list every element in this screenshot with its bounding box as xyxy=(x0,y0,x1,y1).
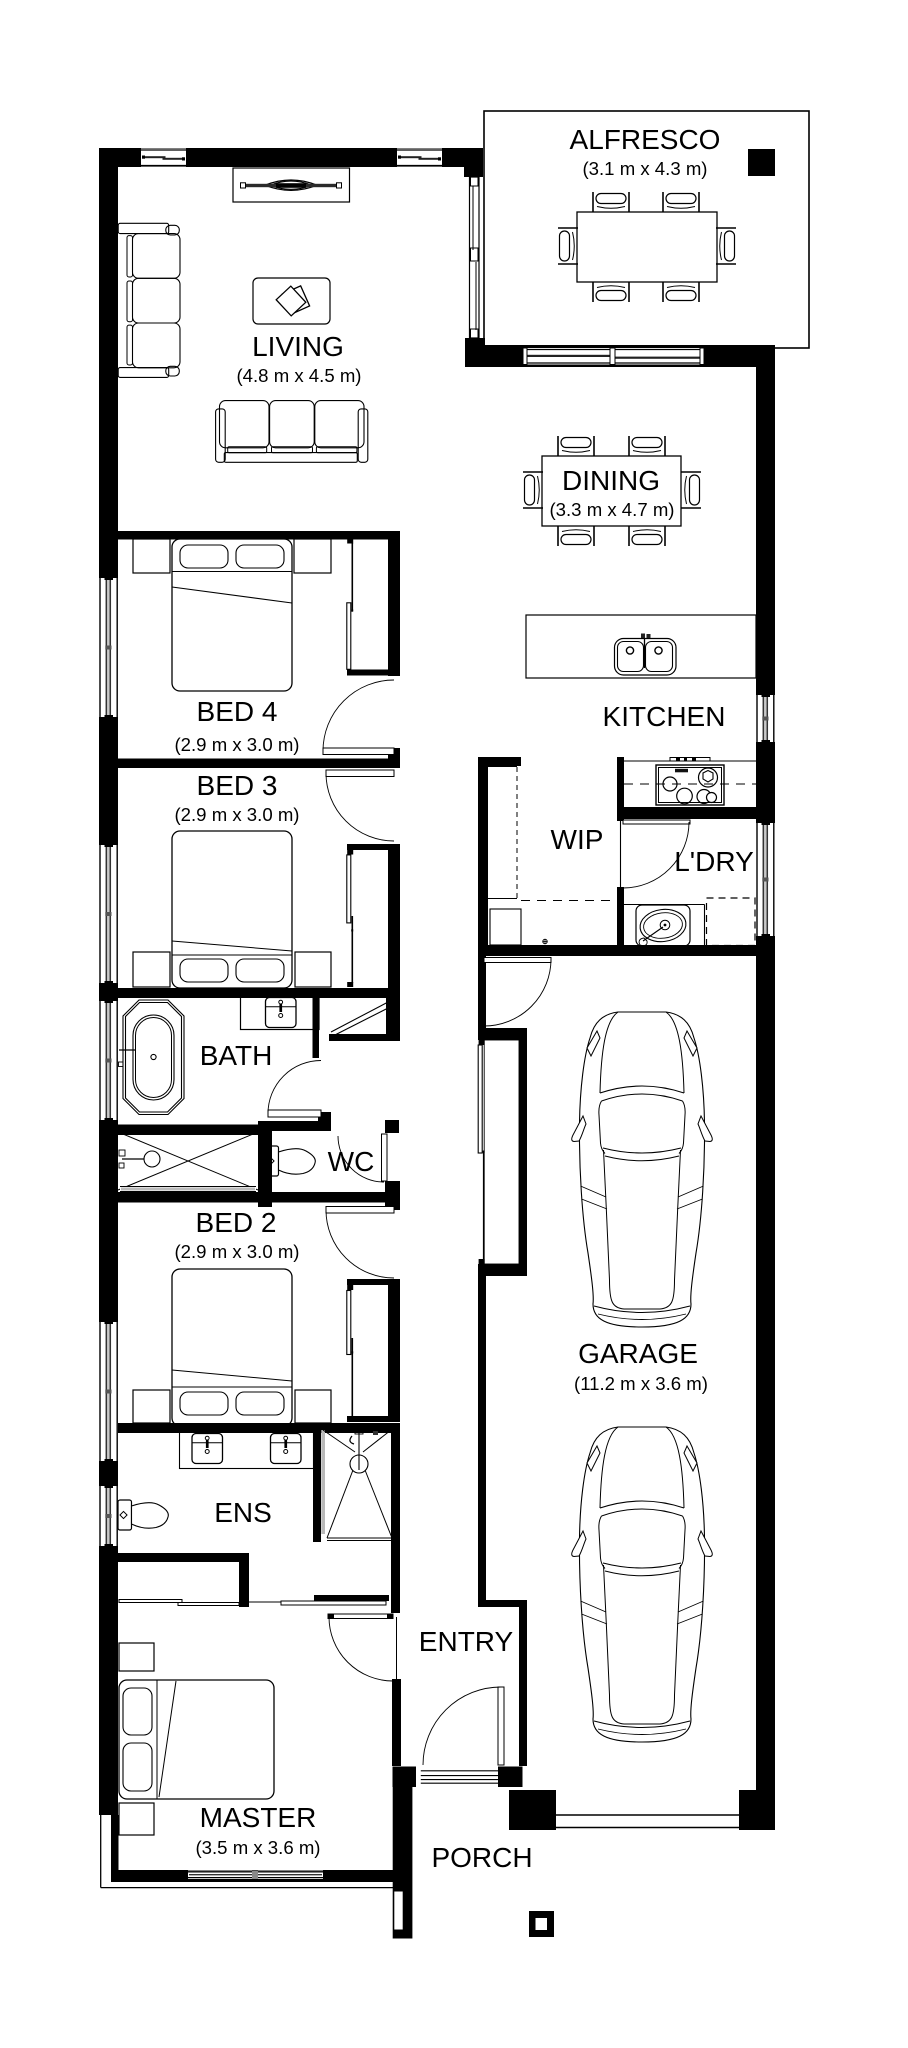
svg-text:(3.1 m x 4.3 m): (3.1 m x 4.3 m) xyxy=(582,158,707,179)
svg-text:(3.5 m x 3.6 m): (3.5 m x 3.6 m) xyxy=(195,1837,320,1858)
svg-text:BED 4: BED 4 xyxy=(197,696,278,727)
svg-text:BED 3: BED 3 xyxy=(197,770,278,801)
svg-text:MASTER: MASTER xyxy=(200,1802,317,1833)
svg-text:(3.3 m x 4.7 m): (3.3 m x 4.7 m) xyxy=(549,499,674,520)
svg-text:ENTRY: ENTRY xyxy=(419,1626,514,1657)
svg-text:WC: WC xyxy=(328,1146,375,1177)
svg-text:BATH: BATH xyxy=(200,1040,273,1071)
svg-text:L'DRY: L'DRY xyxy=(674,846,754,877)
svg-text:ALFRESCO: ALFRESCO xyxy=(570,124,721,155)
svg-text:(4.8 m x 4.5 m): (4.8 m x 4.5 m) xyxy=(236,365,361,386)
svg-text:(2.9 m x 3.0 m): (2.9 m x 3.0 m) xyxy=(174,804,299,825)
svg-text:KITCHEN: KITCHEN xyxy=(603,701,726,732)
svg-text:DINING: DINING xyxy=(562,465,660,496)
svg-text:GARAGE: GARAGE xyxy=(578,1338,698,1369)
svg-text:WIP: WIP xyxy=(551,824,604,855)
svg-text:(2.9 m x 3.0 m): (2.9 m x 3.0 m) xyxy=(174,1241,299,1262)
svg-text:(11.2 m x 3.6 m): (11.2 m x 3.6 m) xyxy=(574,1373,708,1394)
svg-text:LIVING: LIVING xyxy=(252,331,344,362)
svg-text:ENS: ENS xyxy=(214,1497,272,1528)
svg-text:BED 2: BED 2 xyxy=(196,1207,277,1238)
svg-text:PORCH: PORCH xyxy=(431,1842,532,1873)
svg-text:(2.9 m x 3.0 m): (2.9 m x 3.0 m) xyxy=(174,734,299,755)
